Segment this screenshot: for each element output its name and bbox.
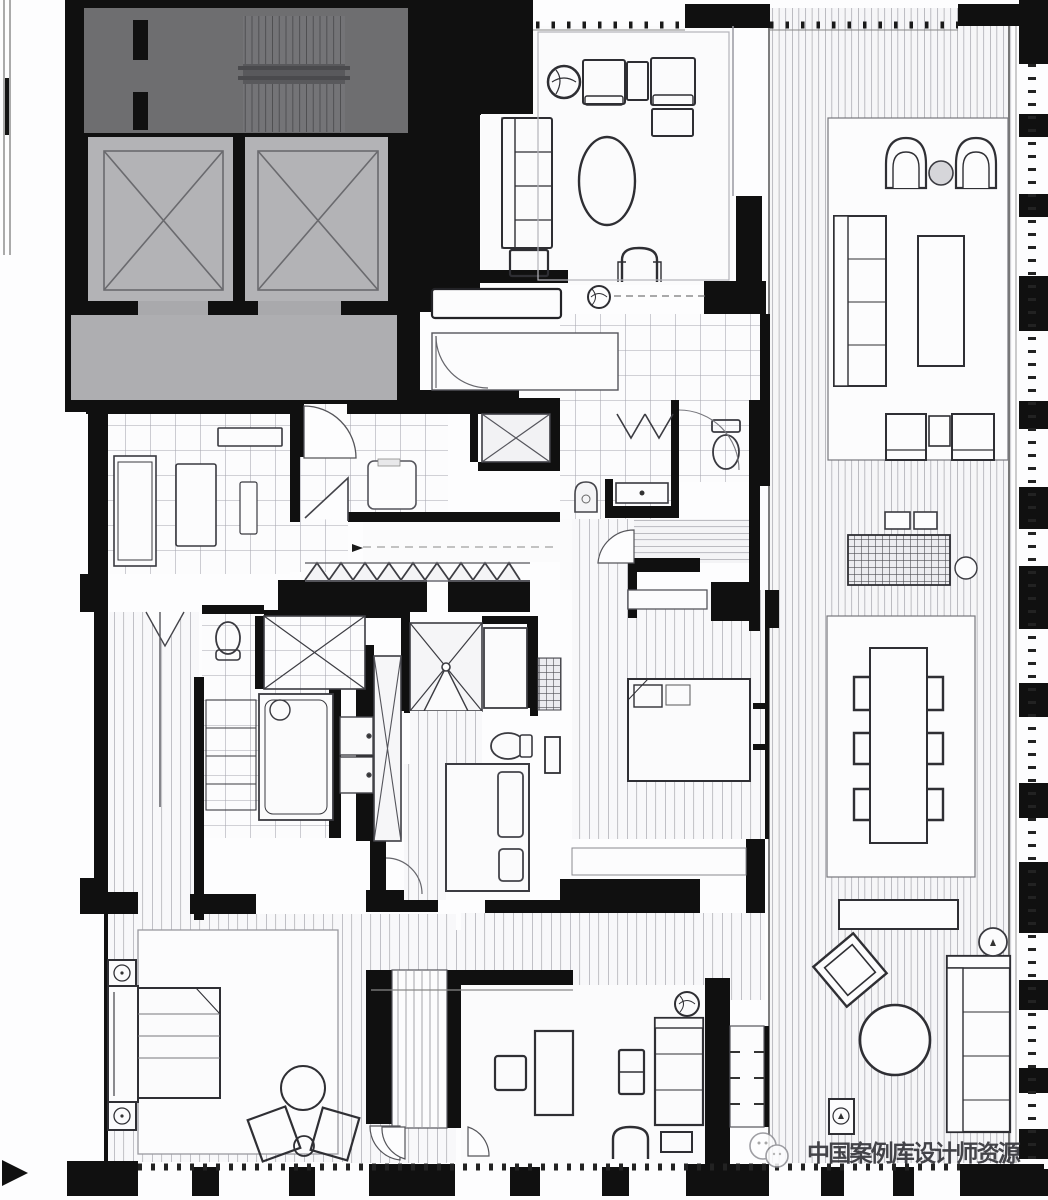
svg-text:中国案例库设计师资源: 中国案例库设计师资源 bbox=[807, 1140, 1021, 1166]
